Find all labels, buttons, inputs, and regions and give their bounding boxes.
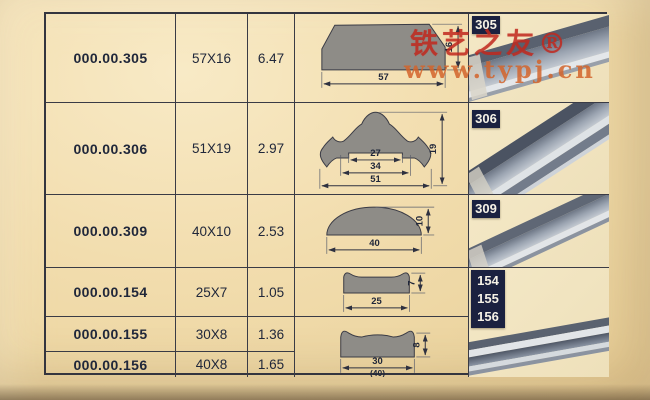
profile-155-156-shape (341, 331, 415, 357)
dim-306-height: 19 (428, 143, 439, 154)
size-306: 51X19 (176, 103, 248, 195)
code-305-text: 000.00.305 (73, 50, 147, 66)
code-155-text: 000.00.155 (73, 326, 147, 342)
size-156-text: 40X8 (196, 357, 228, 372)
diagram-154: 25 7 (295, 268, 468, 317)
photo-label-156: 156 (471, 308, 505, 326)
profile-309-shape (327, 207, 421, 235)
size-309-text: 40X10 (192, 224, 231, 239)
photo-label-154: 154 (471, 272, 505, 290)
photo-label-155: 155 (471, 290, 505, 308)
diagram-306-cell: 27 34 51 19 (295, 103, 469, 195)
diagram-154-cell: 25 7 (295, 268, 469, 317)
photo-label-305: 305 (472, 16, 500, 34)
dim-155-156-height: 8 (411, 342, 422, 347)
diagram-309-cell: 40 10 (295, 195, 469, 268)
photo-305-cell: 305 (469, 14, 609, 103)
size-154-text: 25X7 (196, 285, 228, 300)
diagram-155-156: 30 (40) 8 (295, 317, 468, 377)
weight-155-text: 1.36 (258, 327, 284, 342)
dim-154-width: 25 (371, 295, 382, 306)
diagram-309: 40 10 (295, 195, 468, 268)
dim-154-height: 7 (406, 280, 417, 285)
dim-305-width: 57 (378, 71, 389, 82)
size-306-text: 51X19 (192, 141, 231, 156)
dim-309-width: 40 (369, 237, 380, 248)
weight-305-text: 6.47 (258, 51, 284, 66)
dim-306-outer: 51 (370, 173, 381, 184)
diagram-305-cell: 57 16 (295, 14, 469, 103)
photo-306-cell: 306 (469, 103, 609, 195)
code-306: 000.00.306 (46, 103, 176, 195)
dim-306-mid: 34 (370, 160, 381, 171)
code-309-text: 000.00.309 (73, 223, 147, 239)
profile-154-shape (344, 272, 410, 292)
size-305: 57X16 (176, 14, 248, 103)
code-309: 000.00.309 (46, 195, 176, 268)
photo-309-cell: 309 (469, 195, 609, 268)
dim-155-156-width: 30 (372, 356, 383, 367)
diagram-155-156-cell: 30 (40) 8 (295, 317, 469, 377)
photo-label-154-156: 154 155 156 (471, 270, 505, 328)
code-305: 000.00.305 (46, 14, 176, 103)
size-155-text: 30X8 (196, 327, 228, 342)
photo-label-306: 306 (472, 110, 500, 128)
dim-309-height: 10 (414, 215, 425, 226)
size-154: 25X7 (176, 268, 248, 317)
weight-306: 2.97 (248, 103, 295, 195)
size-305-text: 57X16 (192, 51, 231, 66)
photo-label-309: 309 (472, 200, 500, 218)
weight-309-text: 2.53 (258, 224, 284, 239)
weight-306-text: 2.97 (258, 141, 284, 156)
dim-305-height: 16 (444, 41, 455, 52)
code-156: 000.00.156 (46, 352, 176, 377)
code-155: 000.00.155 (46, 317, 176, 352)
catalog-page: 000.00.305 57X16 6.47 57 16 (0, 0, 650, 400)
weight-156: 1.65 (248, 352, 295, 377)
code-154-text: 000.00.154 (73, 284, 147, 300)
weight-155: 1.36 (248, 317, 295, 352)
profile-305-shape (322, 24, 445, 70)
weight-156-text: 1.65 (258, 357, 284, 372)
dim-306-inner: 27 (370, 147, 381, 158)
diagram-306: 27 34 51 19 (295, 103, 468, 195)
product-table: 000.00.305 57X16 6.47 57 16 (44, 12, 607, 375)
weight-154-text: 1.05 (258, 285, 284, 300)
code-156-text: 000.00.156 (73, 357, 147, 373)
diagram-305: 57 16 (295, 14, 468, 103)
weight-154: 1.05 (248, 268, 295, 317)
code-306-text: 000.00.306 (73, 141, 147, 157)
size-155: 30X8 (176, 317, 248, 352)
weight-309: 2.53 (248, 195, 295, 268)
weight-305: 6.47 (248, 14, 295, 103)
dim-155-156-width-alt: (40) (370, 368, 385, 377)
code-154: 000.00.154 (46, 268, 176, 317)
size-156: 40X8 (176, 352, 248, 377)
size-309: 40X10 (176, 195, 248, 268)
photo-154-156-cell: 154 155 156 (469, 268, 609, 377)
